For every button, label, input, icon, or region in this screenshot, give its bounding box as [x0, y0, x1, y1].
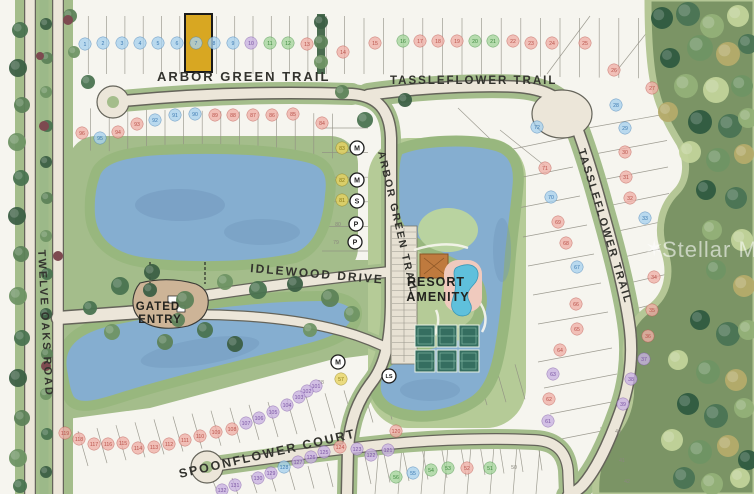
- lot-number: 90: [192, 112, 198, 118]
- lot-number: 88: [230, 113, 236, 119]
- preserve-tree-icon-highlight: [670, 352, 680, 362]
- lot-number: 23: [528, 41, 534, 47]
- tree-icon-highlight: [359, 114, 367, 122]
- lot-number: 81: [339, 198, 345, 204]
- lot-number: 83: [339, 146, 345, 152]
- utility-marker-label: M: [335, 360, 341, 367]
- tree-icon-highlight: [146, 266, 154, 274]
- preserve-tree-icon-highlight: [679, 395, 690, 406]
- tree-icon-highlight: [69, 47, 75, 53]
- tree-icon-highlight: [323, 291, 332, 300]
- tree-icon-highlight: [41, 231, 47, 237]
- preserve-tree-icon-highlight: [690, 38, 703, 51]
- tree-icon-highlight: [16, 99, 24, 107]
- street-label-tassleflower-trail: TASSLEFLOWER TRAIL: [390, 75, 557, 87]
- lot-number: 95: [97, 136, 103, 142]
- lot-number: 93: [134, 122, 140, 128]
- lot-number: 12: [285, 41, 291, 47]
- lot-number: 70: [548, 195, 554, 201]
- flowering-bush-icon: [36, 52, 44, 60]
- preserve-tree-icon-highlight: [718, 44, 730, 56]
- watermark: ✶ Stellar MLS: [645, 236, 754, 262]
- tree-icon-highlight: [315, 56, 322, 63]
- lot-number: 5: [157, 41, 160, 47]
- flowering-bush-icon: [39, 121, 49, 131]
- tree-icon-highlight: [41, 19, 47, 25]
- lot-number: 34: [651, 275, 657, 281]
- tree-icon-highlight: [229, 338, 237, 346]
- lot-number: 118: [75, 437, 83, 443]
- lot-number: 105: [269, 410, 278, 416]
- lot-number: 92: [152, 118, 158, 124]
- lot-number: 57: [338, 377, 344, 383]
- preserve-tree-icon-highlight: [698, 182, 708, 192]
- utility-marker-label: LS: [385, 374, 392, 380]
- lot-number: 122: [367, 453, 376, 459]
- utility-marker-label: P: [354, 222, 359, 229]
- lot-number: 68: [563, 241, 569, 247]
- lot-number: 109: [212, 430, 221, 436]
- lot-number: 52: [464, 466, 470, 472]
- lot-number: 1: [84, 42, 87, 48]
- lot-number: 32: [627, 196, 633, 202]
- lot-number: 53: [445, 466, 451, 472]
- lot-number: 91: [172, 113, 178, 119]
- tree-icon-highlight: [10, 135, 19, 144]
- preserve-tree-icon-highlight: [708, 150, 720, 162]
- gated-entry-label-line1: GATED: [136, 301, 180, 313]
- lot-number: 111: [181, 438, 189, 444]
- lot-number: 84: [319, 121, 325, 127]
- lot-number: 15: [372, 41, 378, 47]
- tree-icon-highlight: [15, 248, 23, 256]
- preserve-tree-icon-highlight: [732, 470, 742, 480]
- tree-icon-highlight: [14, 24, 22, 32]
- lot-number: 103: [295, 395, 304, 401]
- lot-number: 67: [574, 265, 580, 271]
- lot-number: 4: [139, 41, 142, 47]
- utility-marker-label: S: [355, 199, 360, 206]
- utility-marker-label: M: [354, 146, 360, 153]
- utility-marker-label: P: [353, 240, 358, 247]
- lot-number: 42: [624, 479, 630, 485]
- lot-number: 36: [645, 334, 651, 340]
- tree-icon-highlight: [41, 87, 47, 93]
- tree-icon-highlight: [304, 324, 311, 331]
- flowering-bush-icon: [53, 251, 63, 261]
- preserve-tree-icon-highlight: [662, 50, 672, 60]
- lot-number: 125: [320, 450, 329, 456]
- lot-number: 110: [196, 434, 204, 440]
- flowering-bush-icon: [63, 15, 73, 25]
- preserve-tree-icon-highlight: [653, 9, 664, 20]
- preserve-tree-icon-highlight: [736, 146, 746, 156]
- lot-number: 39: [620, 402, 626, 408]
- preserve-tree-icon-highlight: [663, 431, 674, 442]
- tree-icon-highlight: [144, 284, 151, 291]
- cul-de-sac-island: [107, 96, 119, 108]
- preserve-tree-icon-highlight: [706, 80, 719, 93]
- preserve-tree-icon-highlight: [678, 4, 690, 16]
- preserve-tree-icon-highlight: [729, 7, 740, 18]
- lot-number: 56: [393, 475, 399, 481]
- lot-number: 96: [79, 131, 85, 137]
- tree-icon-highlight: [84, 302, 91, 309]
- preserve-tree-icon-highlight: [676, 76, 688, 88]
- lot-number: 71: [542, 166, 548, 172]
- resort-amenity-label-line2: AMENITY: [406, 290, 469, 304]
- tree-icon-highlight: [315, 36, 322, 43]
- preserve-tree-icon-highlight: [690, 442, 702, 454]
- tree-icon-highlight: [346, 308, 354, 316]
- preserve-tree-icon-highlight: [733, 77, 744, 88]
- tree-icon-highlight: [113, 279, 122, 288]
- lot-number: 33: [642, 216, 648, 222]
- lot-number: 27: [649, 86, 655, 92]
- preserve-tree-icon-highlight: [736, 400, 746, 410]
- preserve-tree-icon-highlight: [740, 322, 750, 332]
- lot-number: 113: [150, 445, 158, 451]
- lot-number: 37: [641, 357, 647, 363]
- lot-number: 8: [213, 41, 216, 47]
- preserve-tree-icon-highlight: [690, 112, 702, 124]
- community-site-plan-map: ARBOR GREEN TRAIL TASSLEFLOWER TRAIL ARB…: [0, 0, 754, 494]
- lot-number: 16: [400, 39, 406, 45]
- site-plan-svg: ARBOR GREEN TRAIL TASSLEFLOWER TRAIL ARB…: [0, 0, 754, 494]
- lot-number: 129: [267, 471, 276, 477]
- tree-icon-highlight: [399, 94, 406, 101]
- lot-number: 132: [218, 488, 227, 494]
- tree-icon-highlight: [219, 276, 227, 284]
- lot-number: 20: [472, 39, 478, 45]
- preserve-tree-icon-highlight: [703, 475, 714, 486]
- lot-number: 106: [255, 416, 264, 422]
- lot-number: 82: [339, 178, 345, 184]
- lot-number: 41: [619, 458, 625, 464]
- resort-amenity-label-line1: RESORT: [407, 275, 465, 289]
- tree-icon-highlight: [14, 480, 21, 487]
- lot-number: 28: [613, 103, 619, 109]
- lot-number: 115: [119, 441, 127, 447]
- lake-depth-shading: [135, 189, 225, 221]
- lake-depth-shading: [224, 219, 300, 245]
- lot-number: 54: [428, 468, 434, 474]
- lot-number: 51: [487, 466, 493, 472]
- watermark-text: Stellar MLS: [662, 237, 754, 262]
- lot-number: 25: [582, 41, 588, 47]
- lot-number: 116: [104, 442, 112, 448]
- lot-number: 24: [549, 41, 555, 47]
- lot-number: 35: [649, 308, 655, 314]
- lot-number: 21: [490, 39, 496, 45]
- tree-icon-highlight: [11, 451, 20, 460]
- tree-icon-highlight: [336, 86, 343, 93]
- preserve-tree-icon-highlight: [660, 104, 670, 114]
- road-surface: [58, 312, 140, 318]
- lot-number: 104: [283, 403, 292, 409]
- lot-number: 6: [176, 41, 179, 47]
- lot-number: 127: [294, 460, 303, 466]
- tree-icon-highlight: [82, 76, 89, 83]
- tree-icon-highlight: [11, 371, 20, 380]
- street-label-arbor-green-trail: ARBOR GREEN TRAIL: [157, 69, 330, 84]
- lot-number: 130: [254, 476, 263, 482]
- lot-number: 30: [622, 150, 628, 156]
- tree-icon-highlight: [41, 467, 47, 473]
- lot-number: 9: [232, 41, 235, 47]
- lot-number: 114: [134, 446, 142, 452]
- lot-number: 11: [267, 41, 272, 47]
- lot-number: 55: [410, 471, 416, 477]
- lot-number: 62: [546, 397, 552, 403]
- lot-number: 63: [550, 372, 556, 378]
- tree-icon-highlight: [199, 324, 207, 332]
- lot-number: 123: [353, 447, 362, 453]
- lot-number: 31: [623, 175, 629, 181]
- tree-icon-highlight: [41, 157, 47, 163]
- lot-number: 85: [290, 112, 296, 118]
- lot-number: 10: [248, 41, 254, 47]
- lot-number: 87: [250, 113, 256, 119]
- lot-number: 65: [574, 327, 580, 333]
- lot-number: 26: [611, 68, 617, 74]
- lot-number: 7: [195, 41, 198, 47]
- tree-icon-highlight: [42, 429, 48, 435]
- tree-icon-highlight: [251, 283, 260, 292]
- lot-number: 2: [102, 41, 105, 47]
- tree-icon-highlight: [15, 172, 23, 180]
- lot-number: 79: [333, 240, 339, 246]
- preserve-tree-icon-highlight: [718, 324, 730, 336]
- lot-number: 117: [90, 442, 98, 448]
- lot-number: 80: [335, 222, 341, 228]
- utility-marker-label: M: [354, 178, 360, 185]
- lot-number: 107: [242, 421, 251, 427]
- lot-number: 131: [231, 483, 240, 489]
- preserve-tree-icon-highlight: [702, 16, 714, 28]
- preserve-tree-icon-highlight: [740, 110, 750, 120]
- lot-number: 86: [269, 113, 275, 119]
- lot-number: 124: [336, 445, 345, 451]
- tree-icon-highlight: [10, 209, 19, 218]
- lot-number: 17: [417, 39, 423, 45]
- preserve-tree-icon-highlight: [704, 222, 714, 232]
- lot-number: 29: [622, 126, 628, 132]
- lot-number: 108: [228, 427, 237, 433]
- lake-depth-shading: [400, 379, 460, 401]
- tree-icon-highlight: [16, 412, 24, 420]
- lot-number: 22: [510, 39, 516, 45]
- lot-number: 112: [165, 442, 173, 448]
- preserve-tree-icon-highlight: [675, 469, 686, 480]
- tree-icon-highlight: [106, 326, 114, 334]
- preserve-tree-icon-highlight: [740, 452, 750, 462]
- tree-icon-highlight: [42, 193, 48, 199]
- tree-icon-highlight: [159, 336, 167, 344]
- lot-number: 89: [212, 113, 218, 119]
- tree-icon-highlight: [11, 61, 20, 70]
- lot-number: 120: [392, 429, 401, 435]
- lot-number: 128: [280, 465, 289, 471]
- lot-number: 3: [121, 41, 124, 47]
- preserve-tree-icon-highlight: [720, 116, 732, 128]
- preserve-tree-icon-highlight: [735, 277, 746, 288]
- tree-icon-highlight: [16, 332, 24, 340]
- preserve-tree-icon-highlight: [706, 406, 718, 418]
- preserve-tree-icon-highlight: [692, 312, 702, 322]
- lot-number: 40: [615, 429, 621, 435]
- preserve-tree-icon-highlight: [740, 36, 750, 46]
- lake-depth-shading: [493, 218, 511, 282]
- tree-icon-highlight: [315, 16, 322, 23]
- preserve-tree-icon-highlight: [698, 362, 710, 374]
- lot-number: 94: [115, 130, 121, 136]
- lot-number: 121: [384, 448, 393, 454]
- preserve-tree-icon-highlight: [727, 189, 738, 200]
- preserve-tree-icon-highlight: [727, 371, 738, 382]
- lot-number: 119: [61, 431, 69, 437]
- preserve-tree-icon-highlight: [708, 262, 718, 272]
- gated-entry-label-line2: ENTRY: [138, 314, 182, 326]
- lot-number: 69: [555, 220, 561, 226]
- preserve-tree-icon-highlight: [719, 437, 730, 448]
- lot-number: 64: [557, 348, 563, 354]
- lot-number: 18: [435, 39, 441, 45]
- lot-number: 72: [534, 125, 540, 131]
- lot-number: 13: [304, 42, 310, 48]
- preserve-tree-icon-highlight: [681, 143, 692, 154]
- lot-number: 38: [628, 377, 634, 383]
- lot-number: 61: [545, 419, 551, 425]
- tree-icon-highlight: [11, 289, 20, 298]
- lot-number: 66: [573, 302, 579, 308]
- lot-number: 50: [511, 465, 517, 471]
- lot-number: 14: [340, 50, 346, 56]
- lot-number: 126: [307, 455, 316, 461]
- lot-number: 19: [454, 39, 460, 45]
